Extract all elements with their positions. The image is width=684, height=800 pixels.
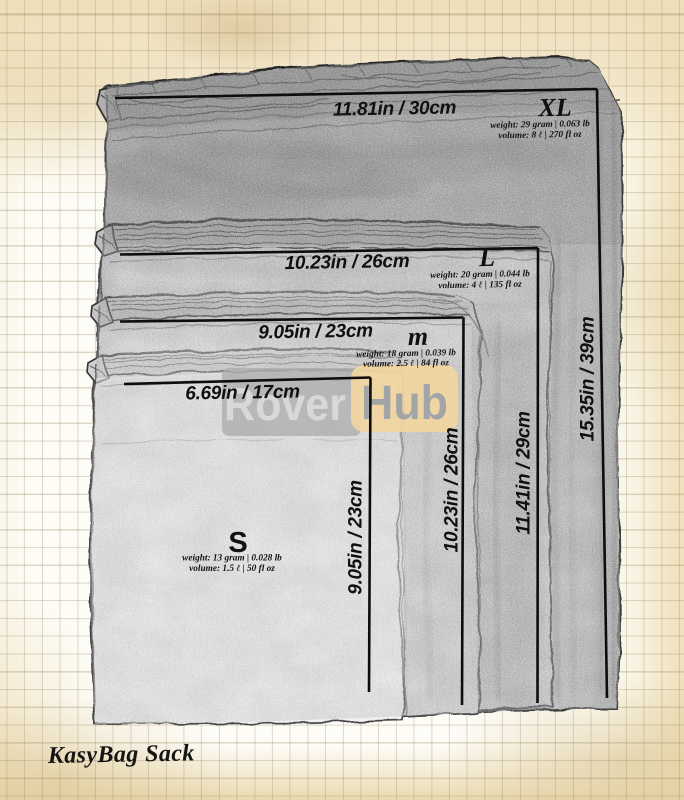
- svg-text:volume: 2.5 ℓ | 84 fl oz: volume: 2.5 ℓ | 84 fl oz: [363, 358, 449, 370]
- svg-text:KasyBag Sack: KasyBag Sack: [47, 740, 195, 769]
- svg-text:volume: 8 ℓ | 270 fl oz: volume: 8 ℓ | 270 fl oz: [498, 130, 582, 141]
- svg-text:9.05in / 23cm: 9.05in / 23cm: [346, 480, 367, 595]
- svg-text:m: m: [408, 322, 429, 351]
- svg-text:L: L: [478, 243, 495, 272]
- svg-text:weight: 13 gram | 0.028 lb: weight: 13 gram | 0.028 lb: [182, 554, 282, 564]
- svg-text:XL: XL: [537, 93, 572, 123]
- svg-text:volume: 1.5 ℓ | 50 fl oz: volume: 1.5 ℓ | 50 fl oz: [189, 564, 275, 574]
- svg-text:volume: 4 ℓ | 135 fl oz: volume: 4 ℓ | 135 fl oz: [438, 280, 522, 291]
- svg-text:Hub: Hub: [361, 377, 448, 430]
- svg-text:11.41in / 29cm: 11.41in / 29cm: [514, 411, 535, 535]
- svg-text:11.81in / 30cm: 11.81in / 30cm: [333, 97, 457, 120]
- svg-text:6.69in / 17cm: 6.69in / 17cm: [185, 381, 300, 404]
- svg-text:15.35in / 39cm: 15.35in / 39cm: [578, 316, 599, 441]
- svg-text:10.23in / 26cm: 10.23in / 26cm: [442, 427, 463, 552]
- svg-text:10.23in / 26cm: 10.23in / 26cm: [284, 251, 409, 274]
- svg-text:9.05in / 23cm: 9.05in / 23cm: [258, 320, 373, 343]
